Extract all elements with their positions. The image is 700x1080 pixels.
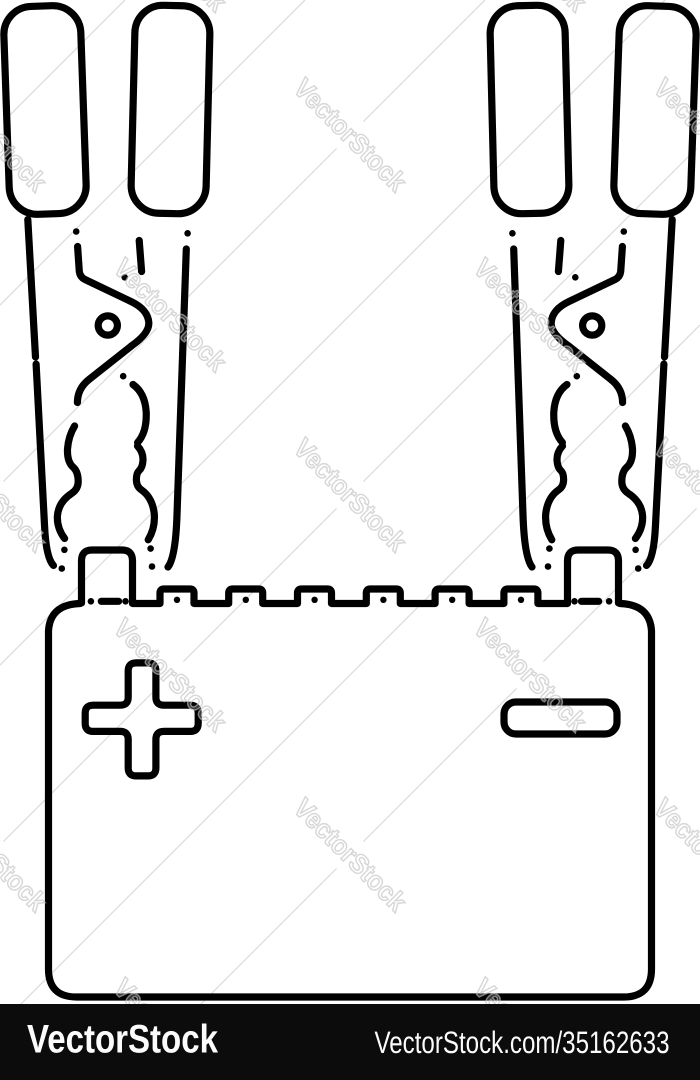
svg-text:VectorStock.com/35162633: VectorStock.com/35162633	[375, 1025, 670, 1060]
svg-text:VectorStock: VectorStock	[27, 1018, 219, 1062]
